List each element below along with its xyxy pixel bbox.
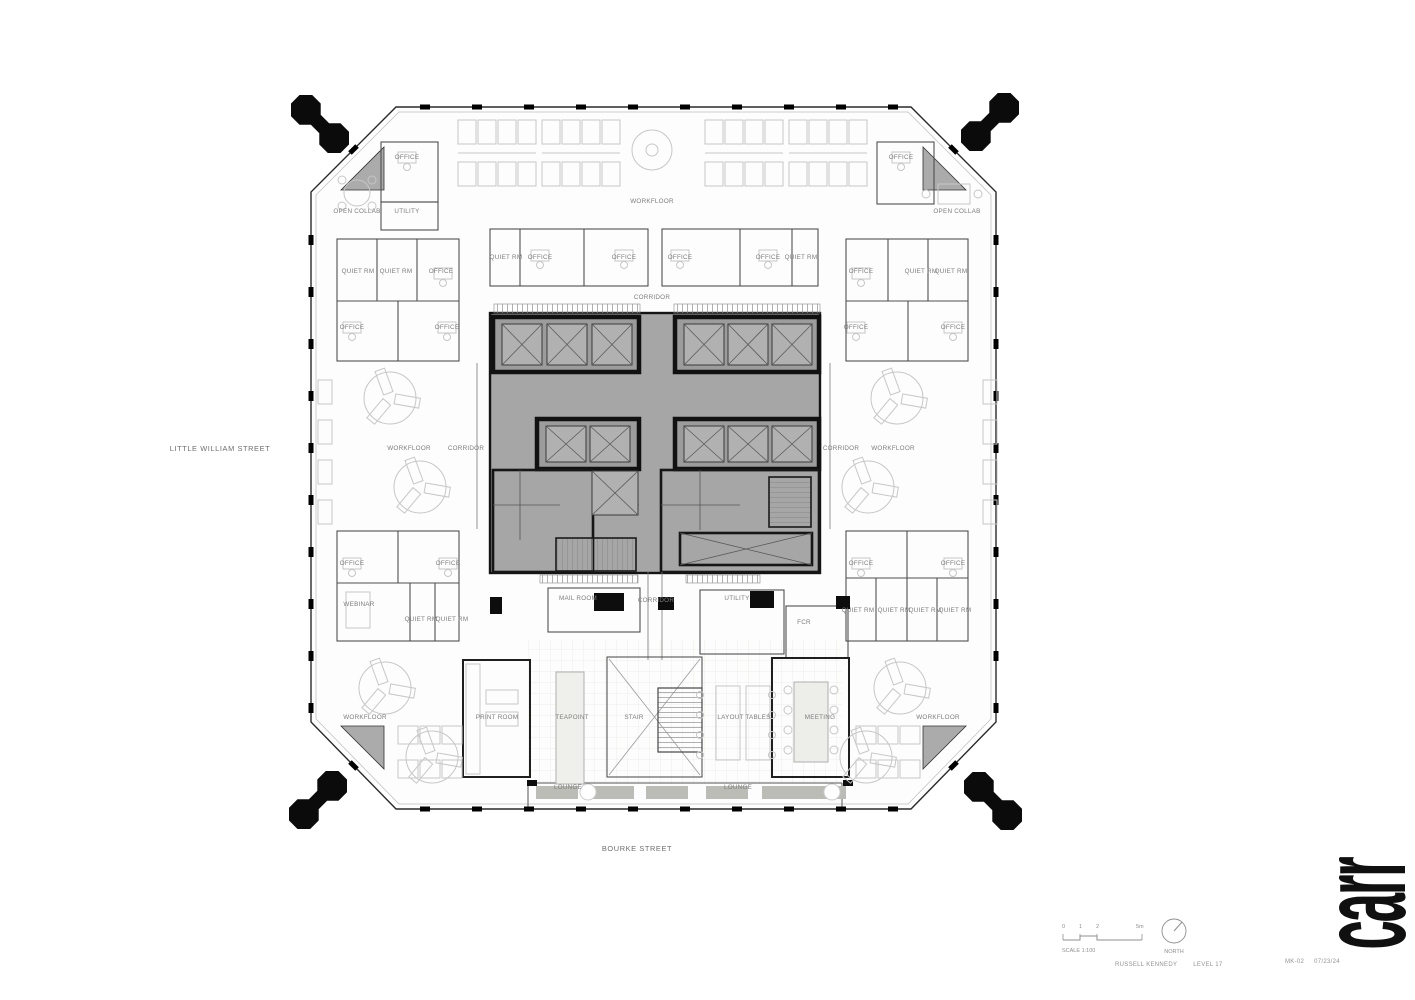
room-label: QUIET RM xyxy=(909,607,942,614)
scale-label: SCALE 1:100 xyxy=(1062,948,1095,954)
drawing-number-block: MK-02 07/23/24 xyxy=(1285,959,1340,965)
room-label: OPEN COLLAB xyxy=(933,208,980,215)
room-label: OFFICE xyxy=(340,560,365,567)
room-label: OFFICE xyxy=(941,324,966,331)
room-label: UTILITY xyxy=(724,595,750,602)
room-label: CORRIDOR xyxy=(634,294,670,301)
room-label: QUIET RM xyxy=(939,607,972,614)
room-label: CORRIDOR xyxy=(448,445,484,452)
room-label: OFFICE xyxy=(941,560,966,567)
room-label: WORKFLOOR xyxy=(916,714,960,721)
level-label: LEVEL 17 xyxy=(1193,962,1222,968)
room-label: OFFICE xyxy=(395,154,420,161)
north-label: NORTH xyxy=(1158,949,1190,955)
room-label: LOUNGE xyxy=(554,784,582,791)
room-label: STAIR xyxy=(624,714,644,721)
room-label: OFFICE xyxy=(668,254,693,261)
room-label: UTILITY xyxy=(394,208,420,215)
room-label: QUIET RM xyxy=(490,254,523,261)
room-label: OFFICE xyxy=(528,254,553,261)
room-label: OFFICE xyxy=(889,154,914,161)
room-label: WEBINAR xyxy=(343,601,374,608)
room-label: MEETING xyxy=(805,714,835,721)
drawing-number: MK-02 xyxy=(1285,959,1304,965)
room-label: CORRIDOR xyxy=(823,445,859,452)
room-label: CORRIDOR xyxy=(638,597,674,604)
room-label: MAIL ROOM xyxy=(559,595,597,602)
carr-logo: carr xyxy=(1318,850,1410,958)
room-label: LAYOUT TABLES xyxy=(717,714,770,721)
room-label: QUIET RM xyxy=(342,268,375,275)
room-label: QUIET RM xyxy=(405,616,438,623)
project-credits: RUSSELL KENNEDY LEVEL 17 xyxy=(1115,962,1223,968)
room-label: PRINT ROOM xyxy=(476,714,519,721)
room-label: OFFICE xyxy=(849,268,874,275)
scale-tick: 1 xyxy=(1079,924,1082,930)
street-label: BOURKE STREET xyxy=(602,844,672,853)
room-label: OFFICE xyxy=(849,560,874,567)
room-label: OFFICE xyxy=(756,254,781,261)
scale-bar: 0 1 2 5m SCALE 1:100 xyxy=(1060,924,1152,956)
scale-tick: 0 xyxy=(1062,924,1065,930)
room-label: QUIET RM xyxy=(905,268,938,275)
room-label: OFFICE xyxy=(429,268,454,275)
room-label: QUIET RM xyxy=(380,268,413,275)
room-label: OFFICE xyxy=(340,324,365,331)
room-label: TEAPOINT xyxy=(555,714,589,721)
scale-bar-graphic xyxy=(1060,932,1150,946)
scale-tick: 2 xyxy=(1096,924,1099,930)
north-indicator: NORTH xyxy=(1158,916,1190,958)
room-label: FCR xyxy=(797,619,811,626)
room-label: QUIET RM xyxy=(842,607,875,614)
room-label: OFFICE xyxy=(436,560,461,567)
room-label: QUIET RM xyxy=(785,254,818,261)
drawing-date: 07/23/24 xyxy=(1314,959,1340,965)
room-label: WORKFLOOR xyxy=(630,198,674,205)
room-label: OFFICE xyxy=(844,324,869,331)
floor-plan-svg: OFFICEUTILITYOPEN COLLABWORKFLOOROFFICEO… xyxy=(0,0,1415,1000)
room-label: OPEN COLLAB xyxy=(333,208,380,215)
scale-tick: 5m xyxy=(1136,924,1144,930)
drawing-sheet: OFFICEUTILITYOPEN COLLABWORKFLOOROFFICEO… xyxy=(0,0,1415,1000)
street-label: LITTLE WILLIAM STREET xyxy=(170,444,270,453)
room-label: WORKFLOOR xyxy=(343,714,387,721)
room-label: OFFICE xyxy=(435,324,460,331)
room-label: QUIET RM xyxy=(436,616,469,623)
north-arrow-icon xyxy=(1158,916,1190,948)
room-label: WORKFLOOR xyxy=(387,445,431,452)
client-name: RUSSELL KENNEDY xyxy=(1115,962,1177,968)
room-label: QUIET RM xyxy=(878,607,911,614)
room-label: WORKFLOOR xyxy=(871,445,915,452)
room-label: QUIET RM xyxy=(935,268,968,275)
room-label: LOUNGE xyxy=(724,784,752,791)
carr-logo-text: carr xyxy=(1303,858,1415,949)
room-label: OFFICE xyxy=(612,254,637,261)
